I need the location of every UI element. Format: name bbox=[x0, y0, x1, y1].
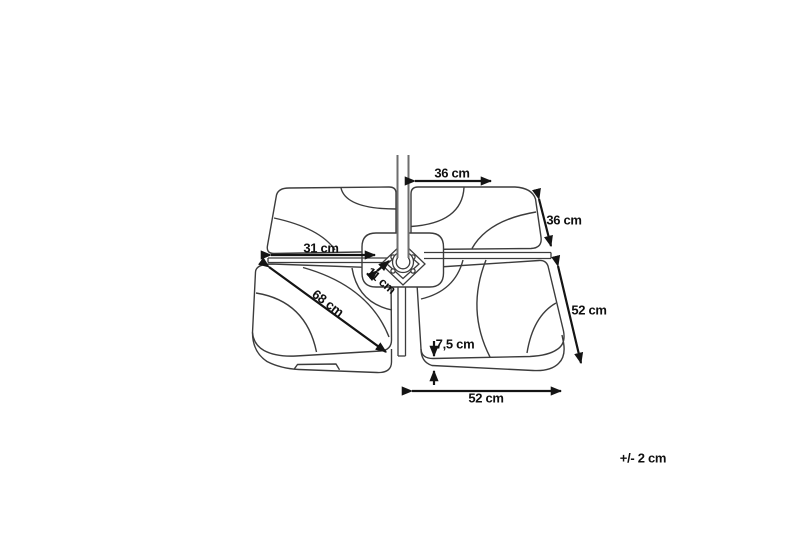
label-tolerance-note: +/- 2 cm bbox=[620, 452, 666, 465]
label-plate-thickness: 7,5 cm bbox=[436, 338, 475, 351]
label-plate-bottom-width: 52 cm bbox=[468, 392, 503, 405]
label-plate-top-width: 36 cm bbox=[434, 167, 469, 180]
dimension-diagram: 36 cm 36 cm 31 cm 11 cm 68 cm 52 cm 7,5 … bbox=[0, 0, 800, 533]
umbrella-pole bbox=[398, 155, 409, 260]
label-left-arm-length: 31 cm bbox=[303, 242, 338, 255]
label-plate-side-depth: 36 cm bbox=[546, 214, 581, 227]
base-line-drawing bbox=[0, 0, 800, 533]
label-plate-right-depth: 52 cm bbox=[571, 304, 606, 317]
